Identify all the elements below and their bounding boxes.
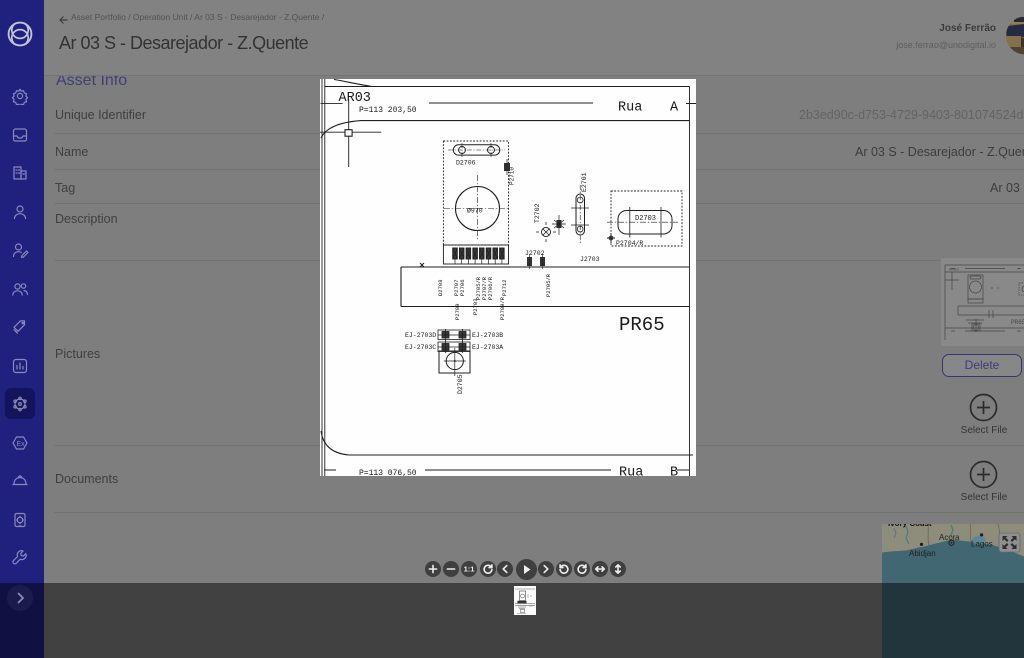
svg-text:D2703: D2703 [635,215,656,223]
svg-text:P2706/R: P2706/R [487,276,494,300]
svg-text:P2704/R: P2704/R [616,240,643,247]
svg-text:Rua: Rua [619,466,643,477]
svg-text:Accra: Accra [939,533,960,542]
svg-text:EJ-2703B: EJ-2703B [472,332,503,339]
svg-text:Ex: Ex [17,441,26,448]
svg-text:D2705: D2705 [457,374,464,394]
svg-text:PR65: PR65 [619,314,665,336]
svg-text:EJ-2703C: EJ-2703C [405,344,436,351]
svg-text:J2703: J2703 [580,256,600,263]
svg-text:Rua: Rua [618,101,642,116]
svg-text:P2705/R: P2705/R [545,273,552,297]
svg-text:Ø970: Ø970 [467,207,483,215]
svg-text:T2702: T2702 [534,203,541,223]
svg-text:D2708: D2708 [437,279,444,296]
svg-text:EJ-2703A: EJ-2703A [472,344,503,351]
svg-text:EJ-2703D: EJ-2703D [405,332,436,339]
svg-text:E2701: E2701 [581,172,588,192]
svg-text:Lagos: Lagos [971,540,993,549]
svg-text:PR65: PR65 [1011,319,1024,326]
svg-text:P2709/R: P2709/R [499,296,506,320]
svg-text:Abidjan: Abidjan [909,549,936,558]
svg-text:P2710: P2710 [509,167,516,185]
svg-text:J2702: J2702 [525,250,545,257]
svg-text:AR03: AR03 [949,269,959,273]
svg-text:P2712: P2712 [501,279,508,296]
svg-text:A: A [670,101,679,116]
svg-text:B: B [670,466,678,477]
svg-text:Ivory Coast: Ivory Coast [888,524,932,528]
svg-text:P2706: P2706 [459,279,466,296]
svg-text:P2709: P2709 [454,303,461,320]
svg-text:D2706: D2706 [456,159,476,166]
svg-text:P2703: P2703 [472,298,479,315]
svg-text:P=113 076,50: P=113 076,50 [359,469,417,476]
svg-text:AR03: AR03 [339,91,371,106]
svg-text:P=113 203,50: P=113 203,50 [359,106,417,115]
svg-text:1:1: 1:1 [464,565,475,574]
